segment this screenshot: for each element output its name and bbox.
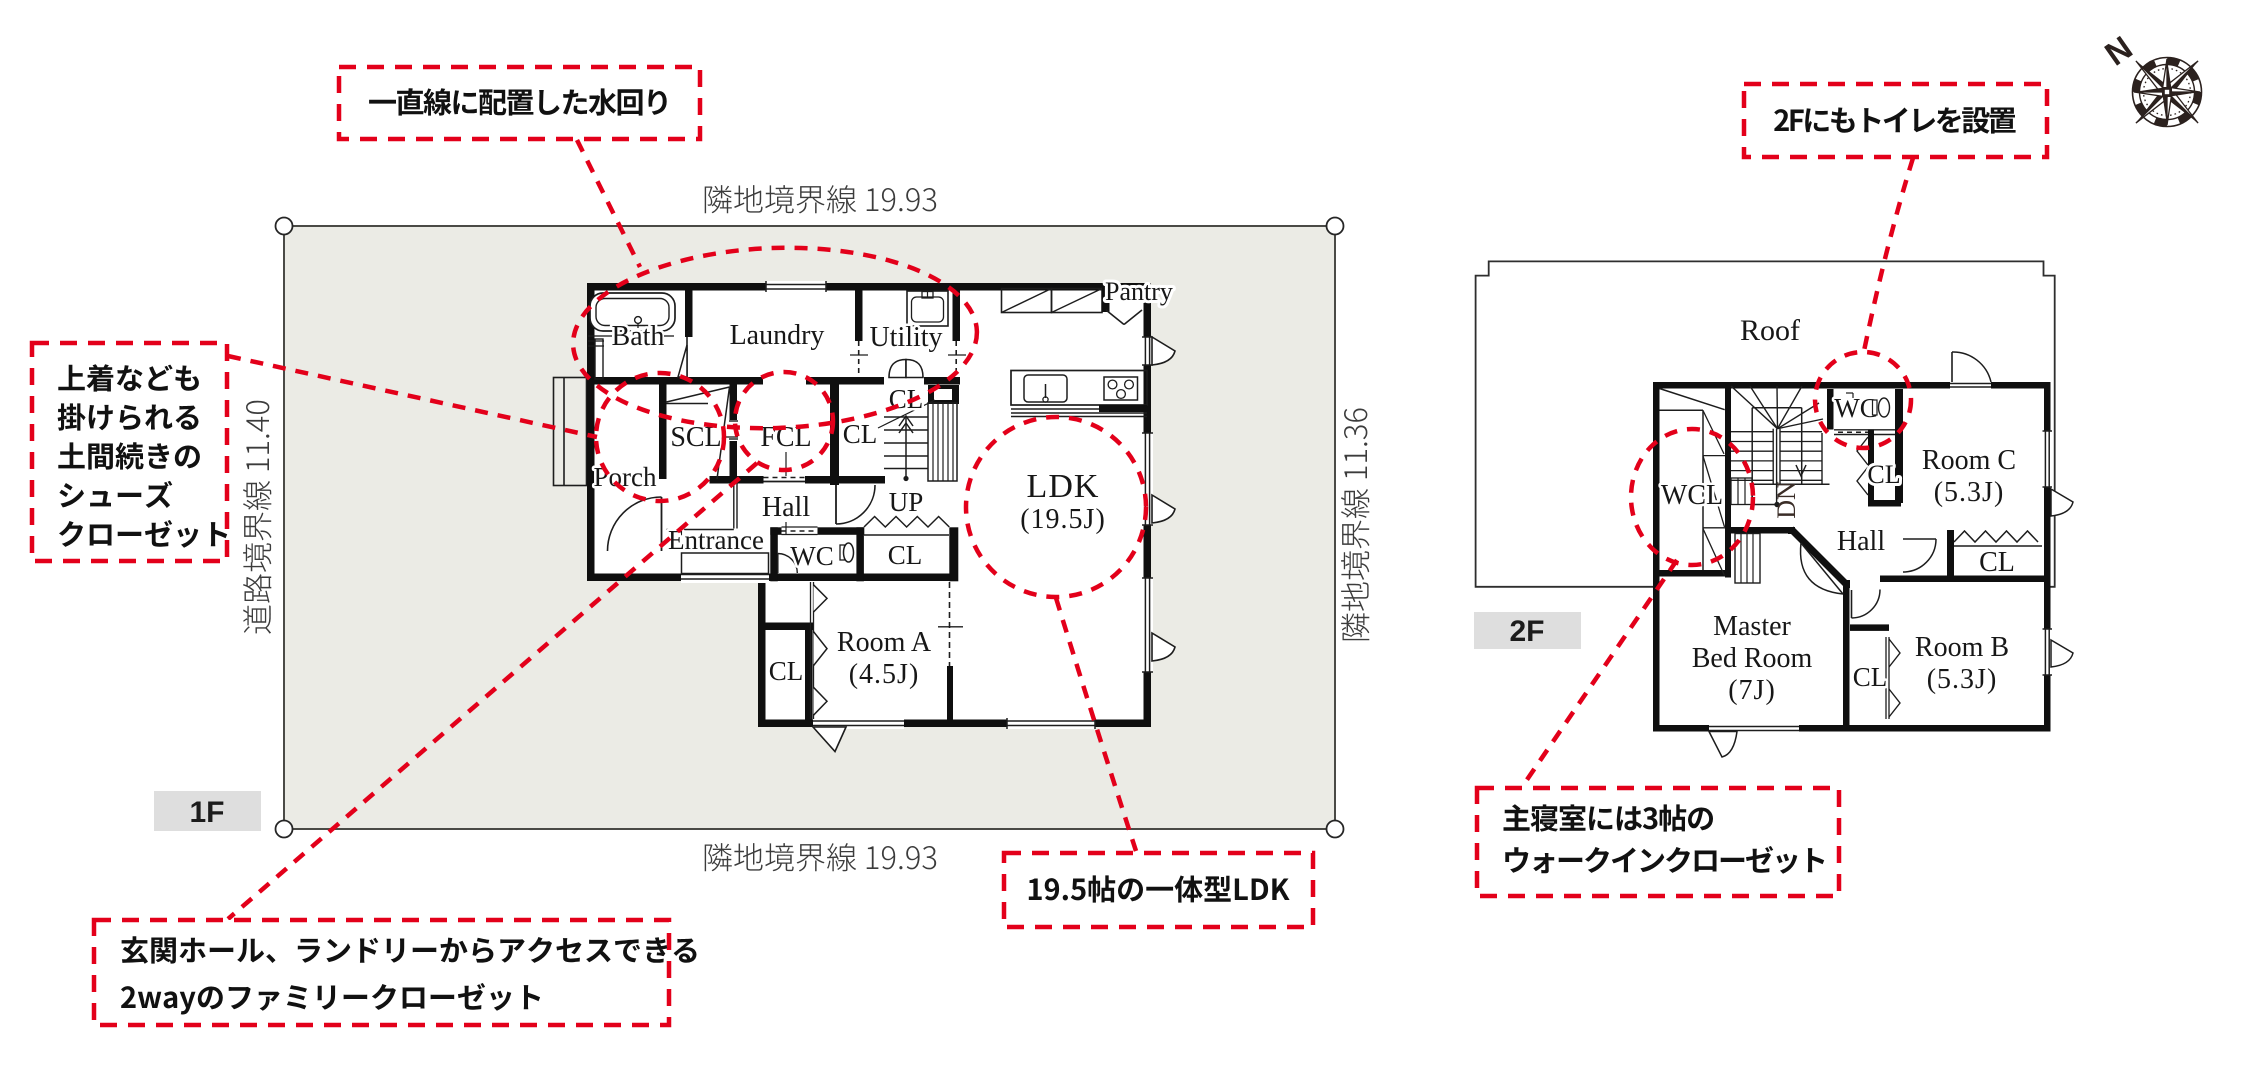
svg-text:CL: CL bbox=[1853, 662, 1888, 692]
svg-text:(5.3J): (5.3J) bbox=[1934, 477, 2005, 508]
svg-text:1F: 1F bbox=[189, 796, 224, 829]
svg-text:CL: CL bbox=[1867, 460, 1900, 489]
svg-text:Laundry: Laundry bbox=[730, 320, 825, 351]
svg-text:Pantry: Pantry bbox=[1105, 277, 1173, 306]
svg-text:CL: CL bbox=[769, 656, 804, 686]
svg-text:Room C: Room C bbox=[1922, 445, 2016, 476]
svg-text:CL: CL bbox=[843, 419, 878, 449]
svg-text:Bed Room: Bed Room bbox=[1692, 643, 1813, 674]
svg-text:LDK: LDK bbox=[1027, 468, 1100, 505]
svg-text:(7J): (7J) bbox=[1728, 675, 1776, 706]
svg-text:WC: WC bbox=[790, 541, 834, 571]
svg-text:Hall: Hall bbox=[1837, 526, 1885, 557]
svg-text:(19.5J): (19.5J) bbox=[1020, 504, 1106, 535]
svg-text:Room B: Room B bbox=[1915, 632, 2009, 663]
svg-text:WC: WC bbox=[1834, 393, 1878, 423]
svg-text:(4.5J): (4.5J) bbox=[849, 659, 920, 690]
svg-text:Bath: Bath bbox=[612, 321, 665, 352]
svg-text:(5.3J): (5.3J) bbox=[1927, 664, 1998, 695]
svg-text:Hall: Hall bbox=[762, 492, 810, 523]
svg-text:2F: 2F bbox=[1509, 615, 1544, 648]
svg-text:UP: UP bbox=[889, 487, 924, 517]
svg-text:Room A: Room A bbox=[837, 627, 932, 658]
svg-text:Utility: Utility bbox=[869, 322, 942, 353]
svg-text:DN: DN bbox=[1772, 481, 1801, 519]
svg-text:WCL: WCL bbox=[1661, 480, 1723, 511]
svg-text:CL: CL bbox=[1979, 547, 2015, 578]
svg-text:Roof: Roof bbox=[1740, 314, 1800, 347]
svg-text:Master: Master bbox=[1713, 611, 1791, 642]
svg-text:CL: CL bbox=[888, 540, 923, 570]
